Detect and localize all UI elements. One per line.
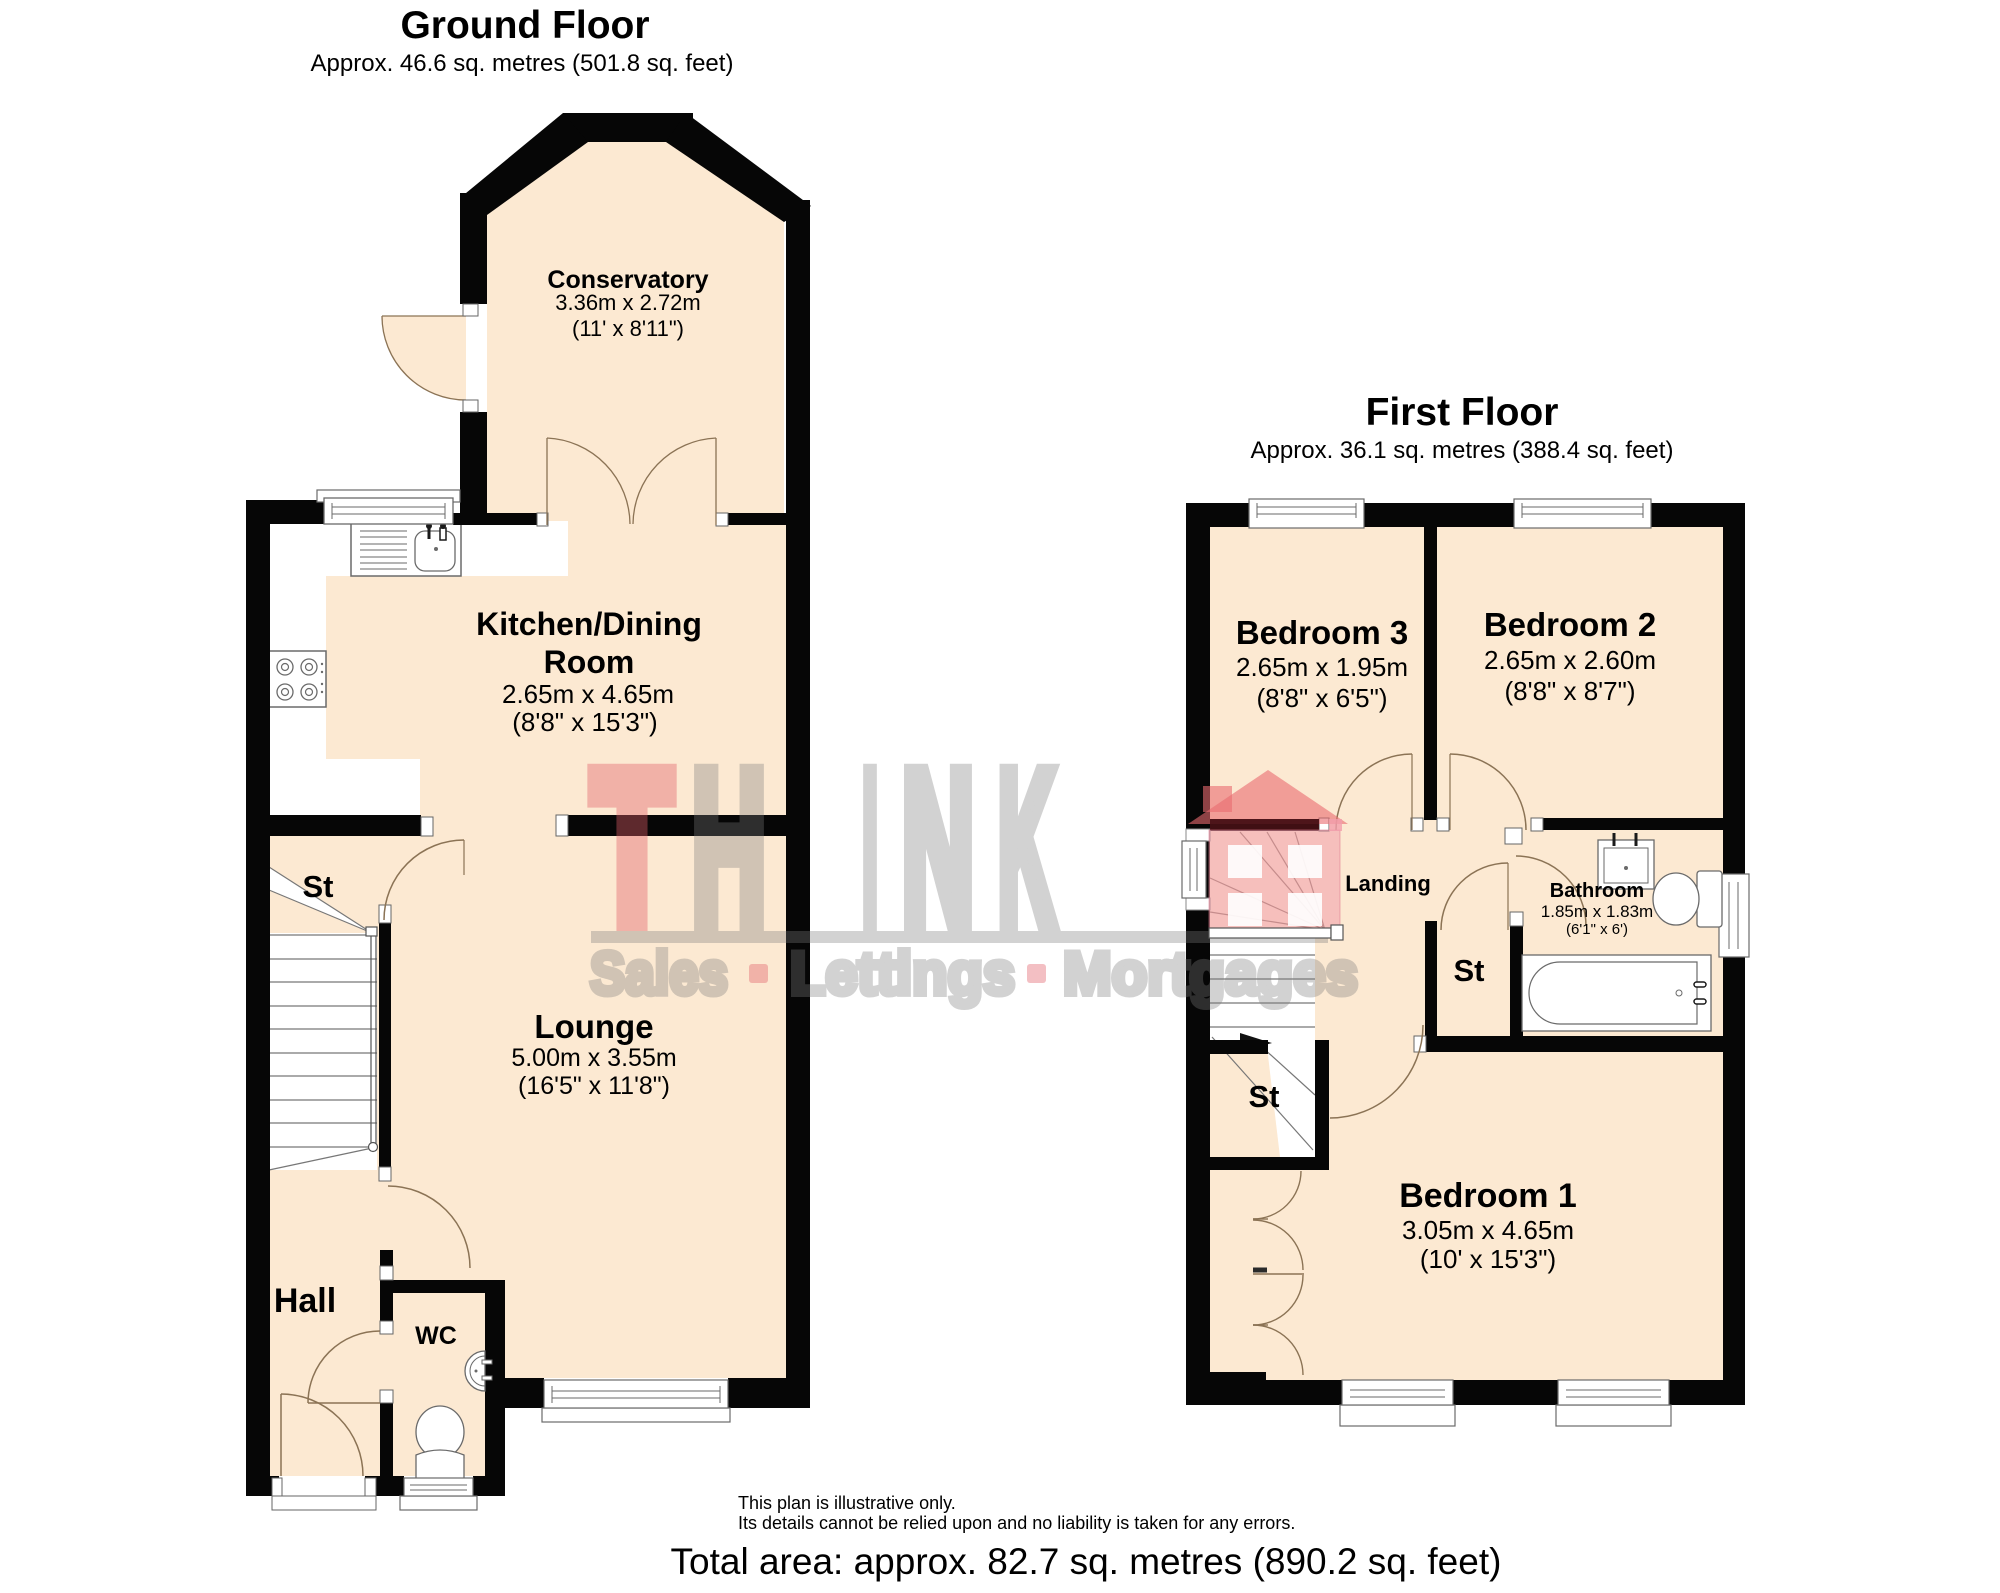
svg-text:(11' x 8'11"): (11' x 8'11"): [572, 316, 684, 341]
svg-text:St: St: [1454, 953, 1485, 988]
svg-text:Bathroom: Bathroom: [1550, 880, 1644, 902]
svg-text:1.85m x 1.83m: 1.85m x 1.83m: [1541, 902, 1653, 921]
svg-text:Ground Floor: Ground Floor: [400, 4, 649, 47]
svg-text:Bedroom 3: Bedroom 3: [1236, 614, 1408, 651]
svg-text:WC: WC: [415, 1322, 457, 1350]
svg-text:Kitchen/Dining: Kitchen/Dining: [476, 606, 702, 642]
svg-text:Landing: Landing: [1345, 871, 1431, 896]
svg-text:Lettings: Lettings: [790, 940, 1015, 1007]
svg-text:3.36m x 2.72m: 3.36m x 2.72m: [555, 290, 701, 315]
svg-text:(16'5" x 11'8"): (16'5" x 11'8"): [518, 1072, 670, 1100]
svg-text:(8'8" x 8'7"): (8'8" x 8'7"): [1505, 676, 1636, 706]
svg-text:(6'1" x 6'): (6'1" x 6'): [1566, 921, 1628, 938]
svg-text:Hall: Hall: [274, 1282, 336, 1320]
svg-text:2.65m x 2.60m: 2.65m x 2.60m: [1484, 645, 1656, 675]
svg-text:St: St: [303, 869, 334, 904]
svg-text:Approx. 46.6 sq. metres (501.8: Approx. 46.6 sq. metres (501.8 sq. feet): [311, 50, 734, 77]
svg-text:First Floor: First Floor: [1366, 391, 1559, 434]
svg-text:Lounge: Lounge: [534, 1008, 653, 1045]
svg-text:St: St: [1249, 1079, 1280, 1114]
svg-text:2.65m x 1.95m: 2.65m x 1.95m: [1236, 652, 1408, 682]
svg-text:Approx. 36.1 sq. metres (388.4: Approx. 36.1 sq. metres (388.4 sq. feet): [1251, 437, 1674, 464]
svg-text:This plan is illustrative only: This plan is illustrative only.: [738, 1493, 956, 1513]
svg-text:Bedroom 2: Bedroom 2: [1484, 606, 1656, 643]
svg-text:Mortgages: Mortgages: [1063, 940, 1358, 1007]
svg-text:Its details cannot be relied u: Its details cannot be relied upon and no…: [738, 1513, 1295, 1533]
svg-text:3.05m x 4.65m: 3.05m x 4.65m: [1402, 1215, 1574, 1245]
svg-text:Room: Room: [544, 644, 635, 680]
svg-text:Bedroom 1: Bedroom 1: [1399, 1177, 1577, 1215]
svg-text:(10' x 15'3"): (10' x 15'3"): [1420, 1244, 1556, 1274]
svg-text:(8'8" x 6'5"): (8'8" x 6'5"): [1257, 683, 1388, 713]
svg-text:Sales: Sales: [590, 940, 728, 1007]
svg-text:Total area: approx. 82.7 sq. m: Total area: approx. 82.7 sq. metres (890…: [671, 1541, 1502, 1582]
svg-text:5.00m x 3.55m: 5.00m x 3.55m: [511, 1044, 676, 1072]
svg-text:2.65m x 4.65m: 2.65m x 4.65m: [502, 679, 674, 709]
